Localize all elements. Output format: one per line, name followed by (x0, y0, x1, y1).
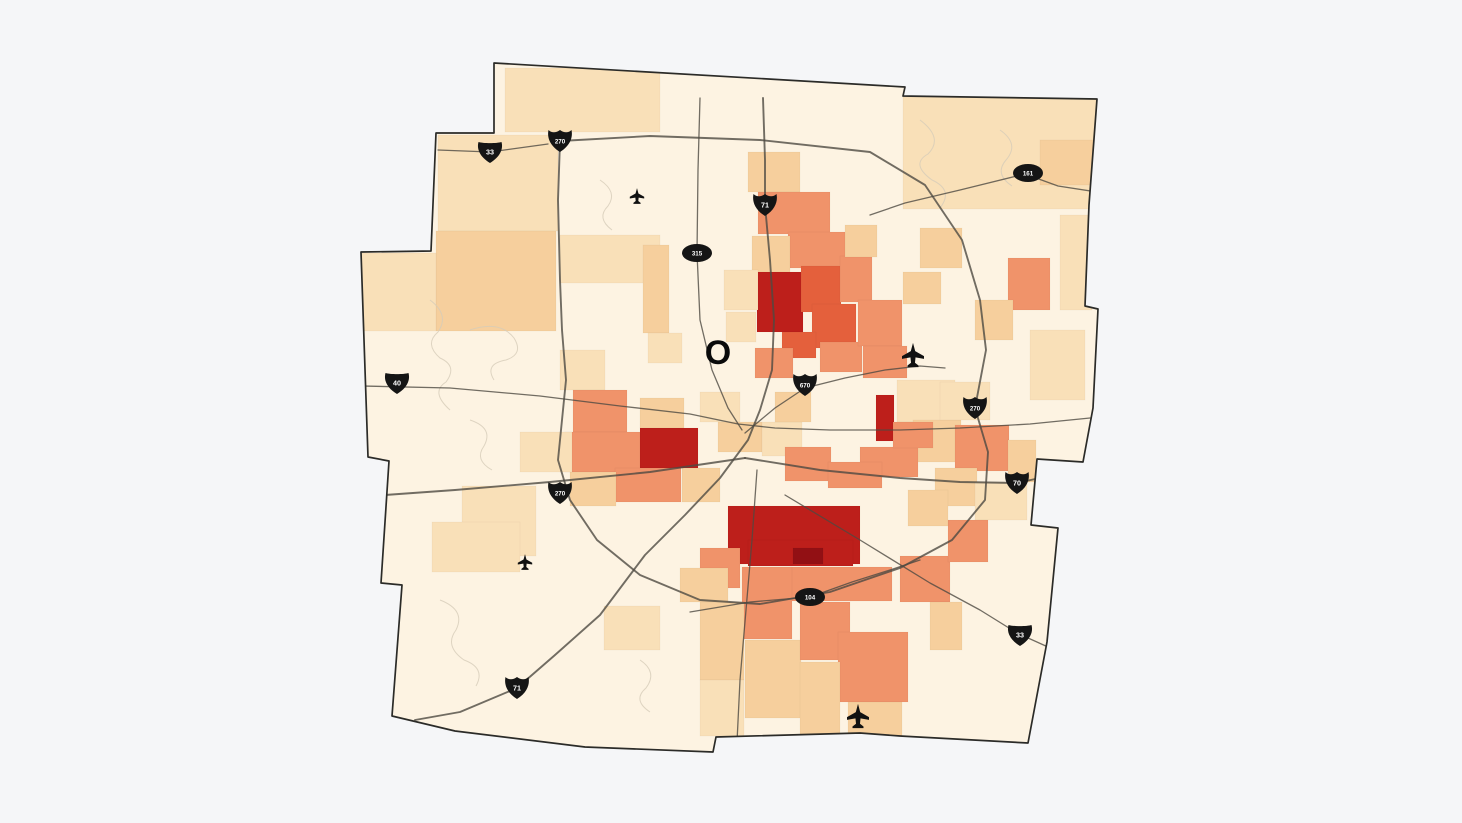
census-tract (903, 272, 941, 304)
route-number-label: 71 (761, 200, 769, 209)
census-tract (908, 490, 948, 526)
census-tract (838, 632, 908, 702)
census-tract (1008, 258, 1050, 310)
route-number-label: 315 (692, 250, 703, 257)
census-tract (565, 432, 641, 472)
census-tract (520, 432, 572, 472)
census-tract (700, 602, 744, 680)
census-tract (745, 640, 801, 718)
route-number-label: 104 (805, 594, 816, 601)
census-tract (812, 304, 856, 348)
route-number-label: 71 (513, 683, 521, 692)
census-tract (858, 300, 902, 346)
census-tract (893, 422, 933, 448)
census-tract (748, 152, 800, 192)
census-tract (757, 272, 803, 332)
map-stage: 332707131516140670270270701043371O (0, 0, 1462, 823)
county-area (361, 63, 1098, 752)
census-tract (840, 256, 872, 302)
route-number-label: 270 (555, 490, 566, 497)
census-tract (920, 228, 962, 268)
census-tract (604, 606, 660, 650)
census-tract (755, 348, 793, 378)
census-tract (643, 245, 669, 333)
state-route-marker-icon: 315 (682, 244, 712, 262)
census-tract (361, 253, 436, 331)
route-number-label: 670 (800, 382, 811, 389)
census-tract (560, 350, 605, 390)
county-choropleth-map: 332707131516140670270270701043371O (0, 0, 1462, 823)
census-tract (820, 342, 862, 372)
census-tract (785, 447, 831, 481)
census-tract (724, 270, 758, 310)
route-number-label: 40 (393, 378, 401, 387)
census-tract (1030, 330, 1085, 400)
census-tract (573, 390, 627, 432)
census-tract (680, 568, 728, 602)
route-number-label: 33 (486, 147, 494, 156)
census-tract (948, 520, 988, 562)
state-route-marker-icon: 161 (1013, 164, 1043, 182)
route-number-label: 33 (1016, 630, 1024, 639)
census-tract (505, 68, 660, 132)
census-tract (793, 548, 823, 564)
census-tract (1040, 140, 1095, 185)
census-tract (432, 522, 520, 572)
route-number-label: 161 (1023, 170, 1034, 177)
census-tract (788, 232, 846, 268)
route-number-label: 70 (1013, 478, 1021, 487)
census-tract (876, 395, 894, 441)
census-tract (648, 333, 682, 363)
state-route-marker-icon: 104 (795, 588, 825, 606)
route-number-label: 270 (555, 138, 566, 145)
census-tract (845, 225, 877, 257)
stadium-letter-marker: O (705, 334, 731, 372)
census-tract (436, 231, 556, 331)
census-tract (930, 602, 962, 650)
route-number-label: 270 (970, 405, 981, 412)
census-tract (640, 428, 698, 468)
census-tract (800, 662, 840, 738)
